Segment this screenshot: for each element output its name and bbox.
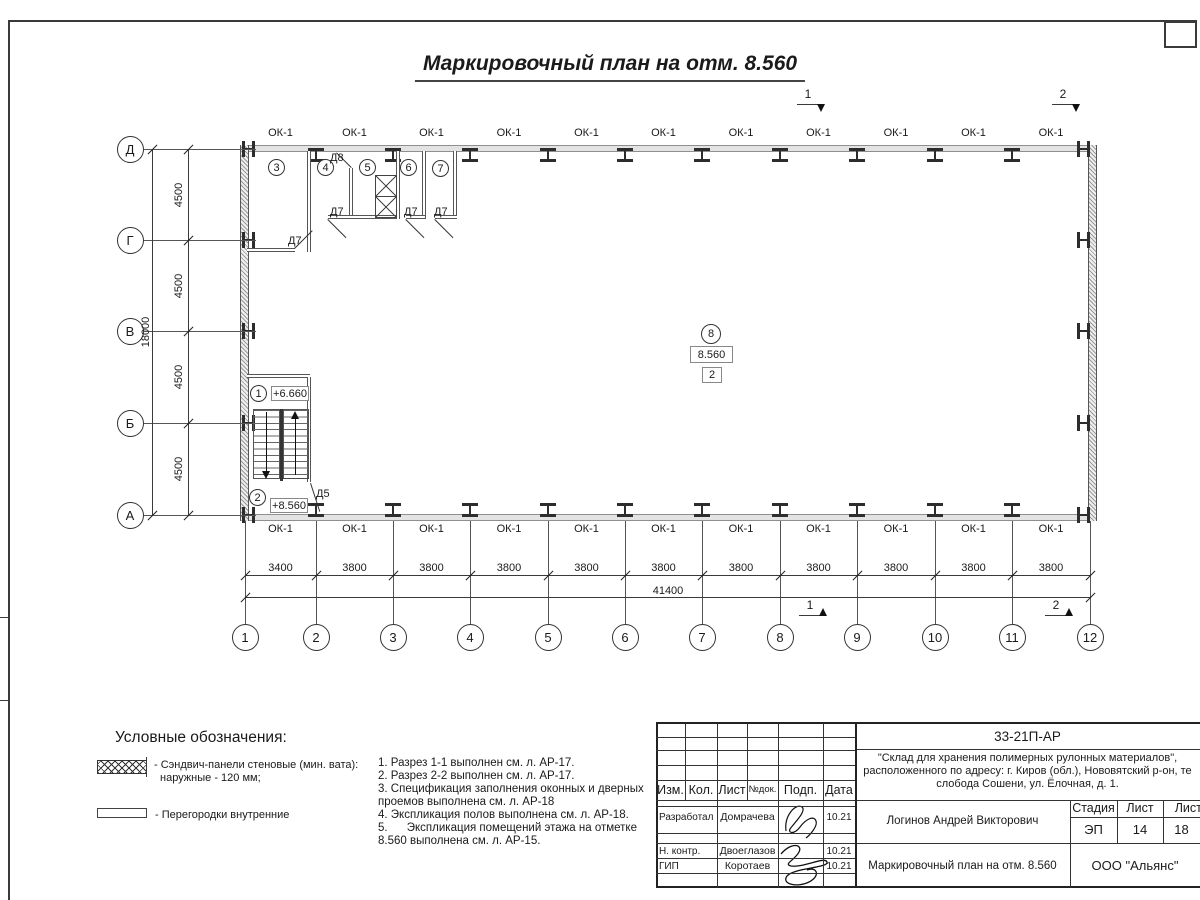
shaft-cell	[375, 175, 397, 197]
stair-top-partition	[247, 374, 310, 378]
stair-flight-right	[283, 409, 309, 479]
dimension-value: 3800	[1029, 562, 1073, 574]
stair-arrow-line	[295, 415, 296, 475]
axis-bubble-row: Б	[117, 410, 144, 437]
name-razrabotal: Домрачева	[717, 810, 778, 824]
axis-bubble-col: 9	[844, 624, 871, 651]
project-name-line: расположенного по адресу: г. Киров (обл.…	[855, 765, 1200, 778]
axis-line-row	[144, 331, 256, 332]
legend-partition-symbol	[97, 808, 147, 818]
window-label-top: ОК-1	[802, 127, 836, 139]
dimension-value: 3800	[642, 562, 686, 574]
window-label-bottom: ОК-1	[492, 523, 526, 535]
elevation-box-stair-upper: +6.660	[271, 386, 309, 401]
dimension-value: 3800	[719, 562, 763, 574]
window-label-top: ОК-1	[879, 127, 913, 139]
dimension-total-value: 18000	[140, 308, 152, 356]
dimension-value: 3800	[565, 562, 609, 574]
titleblock-border	[656, 722, 658, 888]
name-gip: Коротаев	[717, 859, 778, 873]
column-ibeam	[772, 148, 788, 162]
window-label-top: ОК-1	[492, 127, 526, 139]
project-name-line: слобода Сошени, ул. Ёлочная, д. 1.	[855, 778, 1200, 791]
window-label-bottom: ОК-1	[1034, 523, 1068, 535]
column-header-data: Дата	[823, 781, 855, 799]
column-ibeam	[462, 148, 478, 162]
stair-center-wall	[280, 409, 283, 481]
stage-header: Стадия	[1070, 801, 1117, 816]
note-5: 5. Экспликация помещений этажа на отметк…	[378, 822, 637, 836]
door-label-d7: Д7	[434, 206, 454, 218]
axis-bubble-col: 5	[535, 624, 562, 651]
sheet-frame-left	[8, 20, 10, 900]
window-label-top: ОК-1	[415, 127, 449, 139]
column-header-izm: Изм.	[656, 781, 685, 799]
dimension-value: 3800	[487, 562, 531, 574]
column-ibeam	[772, 503, 788, 517]
dimension-value: 4500	[173, 449, 185, 489]
room-circle-6: 6	[400, 159, 417, 176]
note-1: 1. Разрез 1-1 выполнен см. л. АР-17.	[378, 757, 575, 771]
dimension-value: 4500	[173, 175, 185, 215]
dimension-value: 4500	[173, 266, 185, 306]
hall-zone-box: 2	[702, 367, 722, 383]
axis-line-row	[144, 515, 256, 516]
drawing-sheet: Маркировочный план на отм. 8.560 Условны…	[0, 0, 1200, 900]
window-label-bottom: ОК-1	[647, 523, 681, 535]
axis-bubble-col: 10	[922, 624, 949, 651]
window-label-bottom: ОК-1	[264, 523, 298, 535]
section-mark-label: 1	[800, 88, 816, 101]
column-ibeam	[849, 503, 865, 517]
section-mark-label: 1	[802, 599, 818, 612]
section-mark-arrow	[817, 104, 825, 112]
titleblock-line	[656, 800, 855, 801]
axis-bubble-col: 3	[380, 624, 407, 651]
window-label-bottom: ОК-1	[338, 523, 372, 535]
section-mark-arrow	[819, 608, 827, 616]
note-3b: проемов выполнена см. л. АР-18	[378, 796, 554, 810]
room-circle-5: 5	[359, 159, 376, 176]
axis-bubble-row: Д	[117, 136, 144, 163]
titleblock-line	[656, 806, 855, 807]
sheet-number: 14	[1117, 821, 1163, 839]
drawing-title-cell: Маркировочный план на отм. 8.560	[855, 858, 1070, 874]
titleblock-line	[656, 833, 855, 834]
window-label-bottom: ОК-1	[957, 523, 991, 535]
date-gip: 10.21	[823, 861, 855, 873]
axis-line-row	[144, 149, 256, 150]
titleblock-line	[855, 749, 1200, 750]
axis-line-row	[144, 423, 256, 424]
section-mark-arrow	[1065, 608, 1073, 616]
note-3: 3. Спецификация заполнения оконных и две…	[378, 783, 644, 797]
dimension-line-segments	[245, 575, 1091, 576]
column-ibeam	[540, 148, 556, 162]
role-razrabotal: Разработал	[659, 811, 717, 824]
dimension-value: 3800	[874, 562, 918, 574]
window-label-bottom: ОК-1	[879, 523, 913, 535]
room-circle-3: 3	[268, 159, 285, 176]
door-swing	[434, 219, 453, 238]
column-ibeam	[1077, 323, 1090, 339]
axis-bubble-col: 6	[612, 624, 639, 651]
axis-line-row	[144, 240, 256, 241]
sheets-total: 18	[1163, 821, 1200, 839]
date-razrabotal: 10.21	[823, 812, 855, 824]
column-ibeam	[1077, 232, 1090, 248]
column-ibeam	[1077, 141, 1090, 157]
room-circle-7: 7	[432, 160, 449, 177]
titleblock-line	[855, 843, 1200, 844]
legend-heading: Условные обозначения:	[115, 729, 287, 747]
axis-bubble-col: 8	[767, 624, 794, 651]
dimension-value: 3800	[333, 562, 377, 574]
axis-bubble-col: 1	[232, 624, 259, 651]
axis-bubble-row: Г	[117, 227, 144, 254]
axis-bubble-col: 4	[457, 624, 484, 651]
column-ibeam	[540, 503, 556, 517]
column-header-kol: Кол.	[685, 781, 717, 799]
axis-bubble-col: 2	[303, 624, 330, 651]
column-ibeam	[1004, 503, 1020, 517]
titleblock-line	[778, 723, 779, 888]
window-label-top: ОК-1	[570, 127, 604, 139]
column-ibeam	[617, 148, 633, 162]
column-header-list: Лист	[717, 781, 747, 799]
column-ibeam	[308, 503, 324, 517]
column-ibeam	[617, 503, 633, 517]
column-ibeam	[385, 503, 401, 517]
window-label-bottom: ОК-1	[724, 523, 758, 535]
chief-name: Логинов Андрей Викторович	[855, 813, 1070, 829]
legend-item-partition: - Перегородки внутренние	[155, 809, 289, 821]
window-label-top: ОК-1	[338, 127, 372, 139]
window-label-top: ОК-1	[647, 127, 681, 139]
column-ibeam	[1077, 415, 1090, 431]
column-ibeam	[849, 148, 865, 162]
door-label-d8: Д8	[330, 152, 350, 164]
window-label-bottom: ОК-1	[802, 523, 836, 535]
frame-centering-tick-upper	[0, 617, 8, 618]
axis-bubble-col: 12	[1077, 624, 1104, 651]
elevation-box-hall: 8.560	[690, 346, 733, 363]
role-ncontr: Н. контр.	[659, 845, 717, 858]
name-ncontr: Двоеглазов	[717, 844, 778, 858]
elevation-box-stair-lower: +8.560	[270, 498, 308, 513]
sheet-corner-box	[1164, 21, 1197, 48]
wall-top	[240, 145, 1097, 152]
dimension-line-total	[245, 597, 1091, 598]
axis-bubble-row: А	[117, 502, 144, 529]
stair-arrow-line	[266, 412, 267, 474]
door-label-d7: Д7	[288, 235, 308, 247]
column-header-podp: Подп.	[778, 781, 823, 799]
column-ibeam	[927, 503, 943, 517]
stair-arrow-down	[262, 471, 270, 479]
legend-item-sandwich-line2: наружные - 120 мм;	[160, 772, 261, 784]
project-name-line: "Склад для хранения полимерных рулонных …	[855, 752, 1200, 765]
frame-centering-tick-lower	[0, 700, 8, 701]
dimension-value: 4500	[173, 357, 185, 397]
window-label-top: ОК-1	[724, 127, 758, 139]
legend-sandwich-panel-symbol	[97, 760, 147, 774]
role-gip: ГИП	[659, 860, 717, 873]
dimension-line-row-total	[152, 149, 153, 515]
section-mark-arrow	[1072, 104, 1080, 112]
note-2: 2. Разрез 2-2 выполнен см. л. АР-17.	[378, 770, 575, 784]
door-label-d7: Д7	[404, 206, 424, 218]
room-circle-8: 8	[701, 324, 721, 344]
window-label-top: ОК-1	[1034, 127, 1068, 139]
titleblock-line	[1070, 817, 1200, 818]
legend-item-sandwich-line1: - Сэндвич-панели стеновые (мин. вата):	[154, 759, 358, 771]
window-label-bottom: ОК-1	[415, 523, 449, 535]
dimension-value: 3800	[952, 562, 996, 574]
section-mark-label: 2	[1048, 599, 1064, 612]
window-label-top: ОК-1	[264, 127, 298, 139]
column-ibeam	[694, 148, 710, 162]
dimension-value: 3800	[797, 562, 841, 574]
door-swing	[327, 219, 346, 238]
window-label-bottom: ОК-1	[570, 523, 604, 535]
axis-bubble-col: 11	[999, 624, 1026, 651]
titleblock-line	[656, 873, 855, 874]
note-5b: 8.560 выполнена см. л. АР-15.	[378, 835, 540, 849]
room-circle-1: 1	[250, 385, 267, 402]
page-title: Маркировочный план на отм. 8.560	[415, 52, 805, 82]
door-label-d7: Д7	[330, 206, 350, 218]
shaft-cell	[375, 196, 397, 218]
room-circle-2: 2	[249, 489, 266, 506]
axis-bubble-col: 7	[689, 624, 716, 651]
column-ibeam	[1004, 148, 1020, 162]
signature-razrabotal	[780, 801, 824, 841]
dimension-total-value: 41400	[645, 585, 691, 597]
section-mark-label: 2	[1055, 88, 1071, 101]
company-name: ООО "Альянс"	[1070, 858, 1200, 874]
stair-break-line	[283, 478, 309, 479]
window-label-top: ОК-1	[957, 127, 991, 139]
legend-symbol-end-tick	[146, 757, 147, 777]
dimension-value: 3400	[259, 562, 303, 574]
date-ncontr: 10.21	[823, 846, 855, 858]
sheets-header: Листов	[1163, 801, 1200, 816]
sheet-frame-top	[8, 20, 1197, 22]
stage-value: ЭП	[1070, 821, 1117, 839]
column-ibeam	[1077, 507, 1090, 523]
stair-arrow-up	[291, 411, 299, 419]
note-4: 4. Экспликация полов выполнена см. л. АР…	[378, 809, 629, 823]
wall-bottom	[240, 514, 1097, 521]
partition-room3-bottom	[247, 248, 295, 252]
door-swing	[405, 219, 424, 238]
door-label-d5: Д5	[316, 488, 336, 500]
column-ibeam	[462, 503, 478, 517]
column-ibeam	[694, 503, 710, 517]
column-ibeam	[927, 148, 943, 162]
dimension-value: 3800	[410, 562, 454, 574]
doc-number: 33-21П-АР	[855, 724, 1200, 749]
column-header-ndok: №док.	[747, 781, 778, 799]
titleblock-border	[656, 886, 1200, 888]
sheet-header: Лист	[1117, 801, 1163, 816]
